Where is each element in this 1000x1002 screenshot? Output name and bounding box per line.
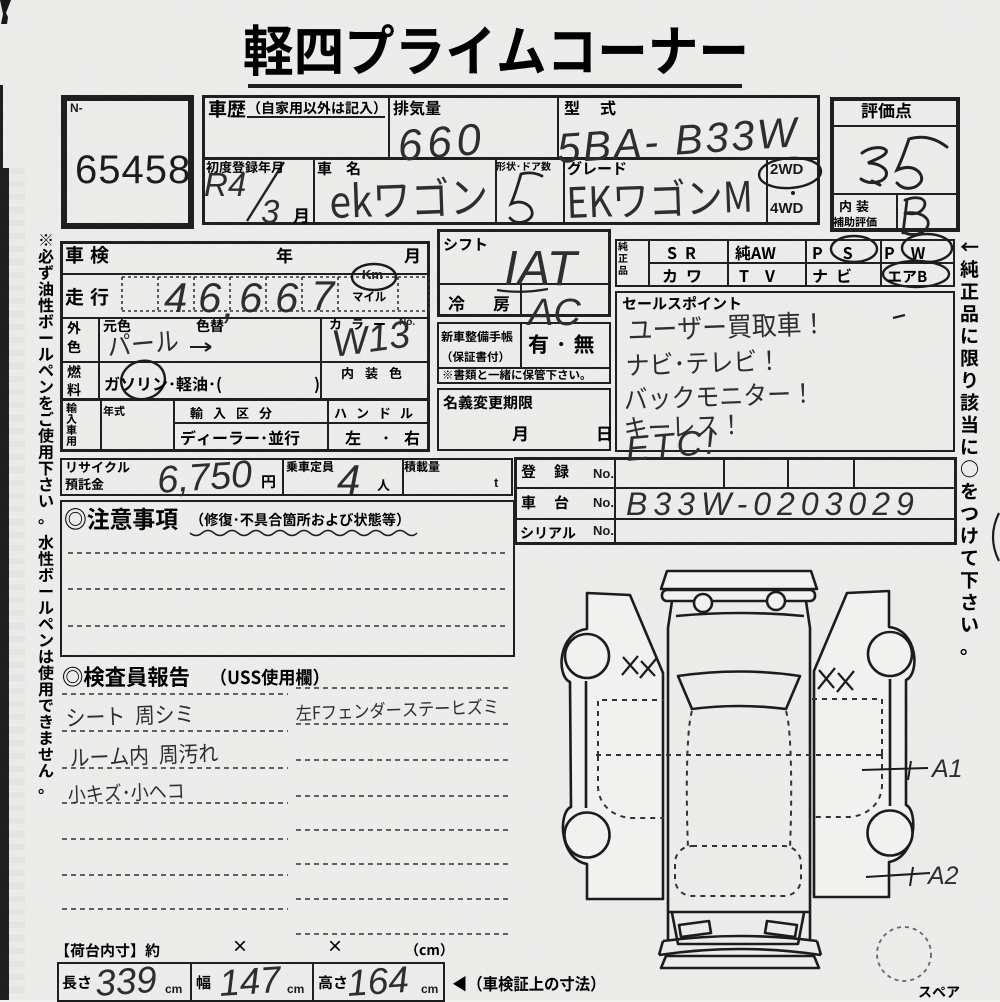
svg-text:6,750: 6,750 — [156, 453, 254, 502]
svg-text:3: 3 — [261, 193, 280, 230]
svg-text:7: 7 — [311, 272, 336, 319]
svg-text:660: 660 — [396, 114, 488, 171]
svg-text:6: 6 — [239, 274, 263, 321]
svg-text:147: 147 — [218, 959, 284, 1000]
svg-text:6: 6 — [198, 274, 222, 321]
svg-text:5BA- B33W: 5BA- B33W — [555, 108, 801, 172]
svg-text:4: 4 — [164, 274, 187, 321]
svg-text:AC: AC — [526, 292, 581, 334]
svg-text:IAT: IAT — [504, 242, 580, 296]
svg-text:,: , — [223, 280, 235, 327]
svg-text:6: 6 — [275, 274, 299, 321]
svg-text:A2: A2 — [926, 862, 959, 890]
svg-text:339: 339 — [94, 959, 158, 1000]
svg-text:164: 164 — [346, 959, 410, 1000]
svg-text:W13: W13 — [329, 313, 412, 365]
svg-text:B33W-0203029: B33W-0203029 — [626, 486, 920, 522]
svg-text:4: 4 — [337, 456, 360, 503]
svg-text:A1: A1 — [930, 755, 963, 783]
